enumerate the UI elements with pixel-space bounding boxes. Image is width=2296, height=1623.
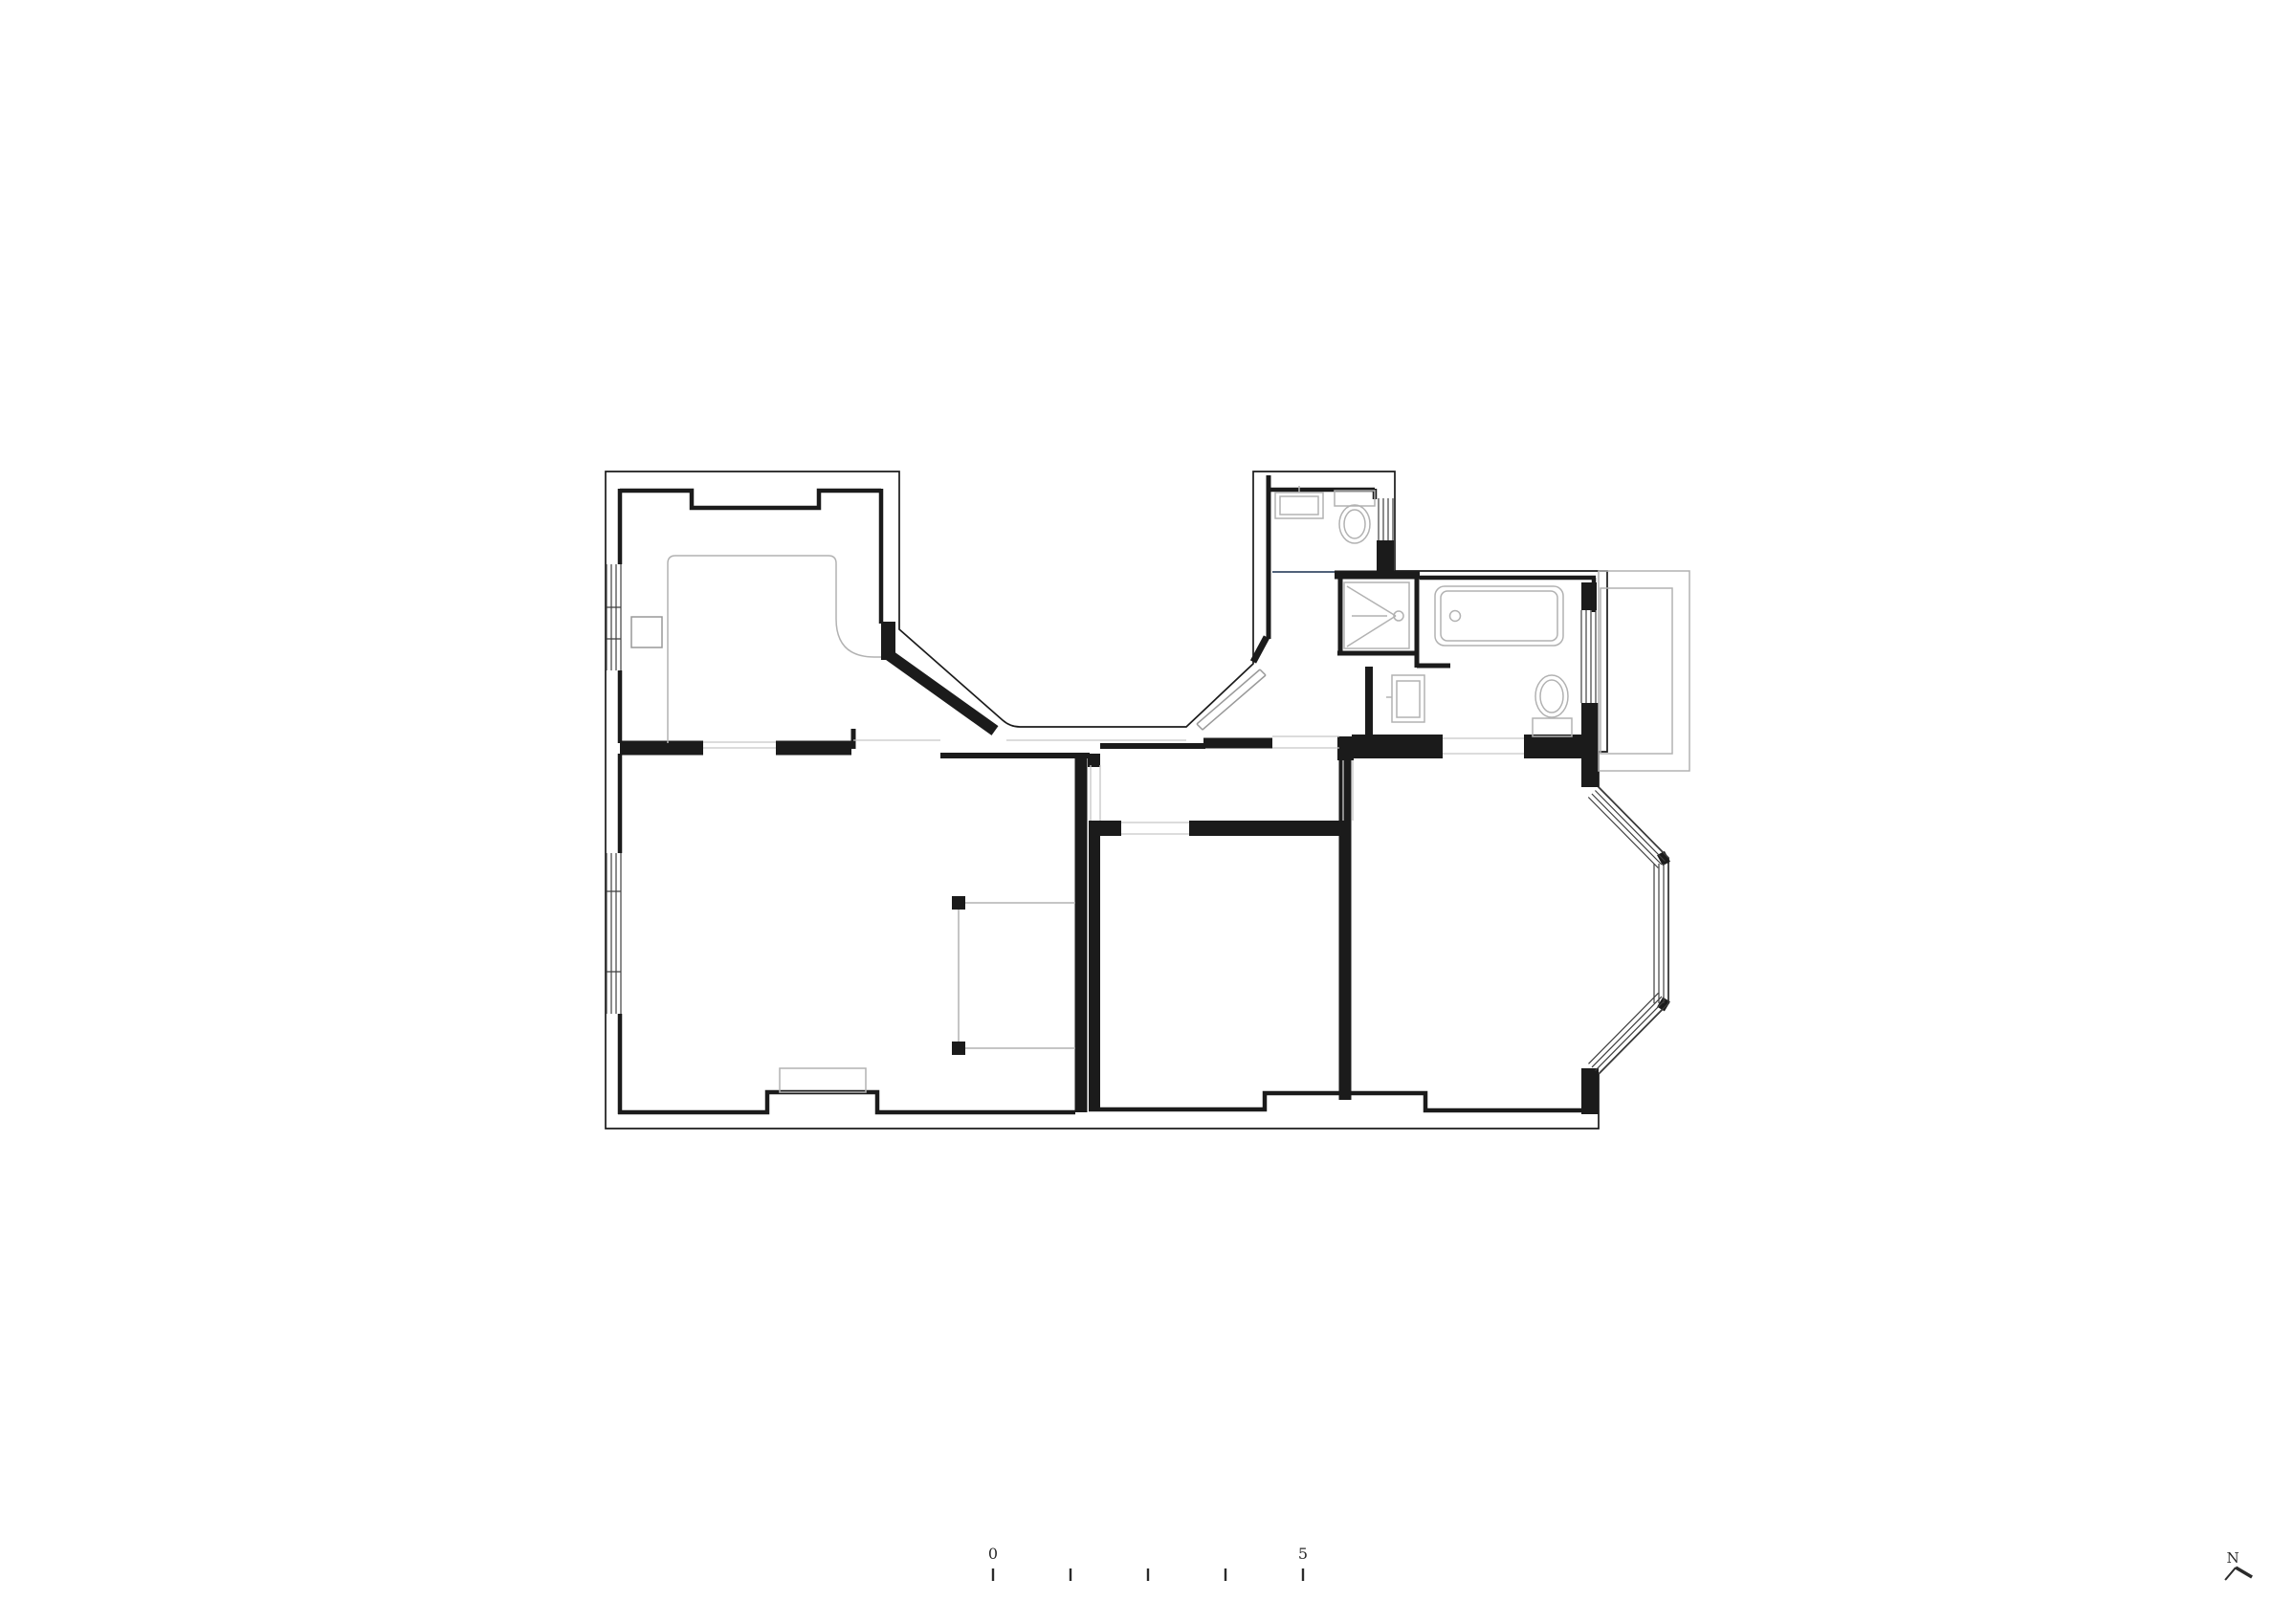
south-wall-inner-face: [618, 1092, 1075, 1112]
middle-room-door-threshold: [1121, 822, 1189, 834]
wc-toilet-bowl-inner: [1344, 510, 1365, 538]
living-window-glazing: [607, 853, 621, 1014]
wall-fill-wc-window-block: [1377, 540, 1394, 573]
bathtub-drain: [1450, 611, 1461, 622]
shower-symbol: [1344, 582, 1409, 648]
wall-fill-bath-door-east: [1524, 735, 1583, 758]
hall-niche-jambs: [1091, 765, 1100, 821]
scale-end-label: 5: [1298, 1545, 1308, 1563]
balcony: [1599, 571, 1689, 771]
living-room-window: [607, 853, 621, 1014]
column-post-north: [952, 896, 965, 910]
fireplace-hearth: [780, 1068, 866, 1092]
north-arrow: N: [2225, 1549, 2252, 1580]
balcony-outer: [1599, 571, 1689, 771]
vestibule-diagonal-stub: [1253, 637, 1267, 662]
bay-window-middle-glazing: [1654, 864, 1668, 1003]
column-post-south: [952, 1042, 965, 1055]
scale-bar: 0 5: [988, 1545, 1308, 1581]
north-arrow-left-leg: [2225, 1568, 2236, 1580]
bathroom-sink-symbol: [1386, 675, 1424, 722]
scale-bar-ticks: [993, 1568, 1303, 1581]
wc-window-glazing: [1379, 498, 1393, 540]
bay-window: [1588, 787, 1668, 1074]
floor-plan-canvas: 0 5 N: [0, 0, 2296, 1623]
bathroom-door-threshold: [1443, 738, 1524, 754]
nightstand: [631, 617, 662, 647]
bathroom-window-glazing: [1581, 610, 1596, 703]
entry-door-leaf: [1197, 669, 1266, 730]
wall-fill-hall-junction: [1337, 736, 1354, 760]
furniture: [631, 556, 1689, 1092]
wc-toilet-tank: [1335, 491, 1375, 506]
fixtures: [1275, 486, 1572, 736]
bedroom-door-threshold: [703, 742, 776, 748]
bathroom-toilet-bowl-inner: [1540, 680, 1563, 713]
vestibule-lobby-opening: [1272, 736, 1339, 748]
floor-plan-page: 0 5 N: [0, 0, 2296, 1623]
windows: [607, 498, 1668, 1074]
scale-start-label: 0: [988, 1545, 998, 1563]
north-label: N: [2226, 1549, 2239, 1567]
bay-window-lower-glazing: [1589, 993, 1669, 1074]
entry-door: [1197, 669, 1266, 730]
bathroom-toilet-symbol: [1533, 675, 1572, 736]
north-arrow-right-leg: [2236, 1568, 2252, 1577]
bathtub-symbol: [1435, 586, 1563, 646]
shower-tray-lines: [1347, 586, 1396, 647]
wall-fill-bay-bottom: [1581, 1068, 1599, 1114]
wall-fill-bath-corner-bottom: [1581, 703, 1599, 787]
wc-toilet-symbol: [1335, 491, 1375, 543]
building-outline: [606, 472, 1668, 1129]
balcony-inner: [1601, 588, 1672, 754]
bathroom-toilet-base: [1533, 718, 1572, 736]
bed-outline: [668, 556, 881, 743]
bay-window-upper-glazing: [1588, 787, 1668, 868]
wc-sink-basin: [1280, 496, 1318, 515]
bathtub-outer: [1435, 586, 1563, 646]
exterior-outline: [606, 472, 1668, 1129]
wc-window: [1379, 498, 1393, 540]
column-opening-lines: [959, 903, 1075, 1048]
bedroom-top-wall: [620, 491, 881, 508]
bathroom-sink-basin: [1397, 681, 1420, 717]
south-wall-inner-face-east: [1089, 1093, 1583, 1110]
bathtub-inner: [1441, 591, 1557, 641]
bedroom-window-glazing: [607, 564, 621, 670]
bathroom-window: [1581, 610, 1596, 703]
bedroom-window: [607, 564, 621, 670]
